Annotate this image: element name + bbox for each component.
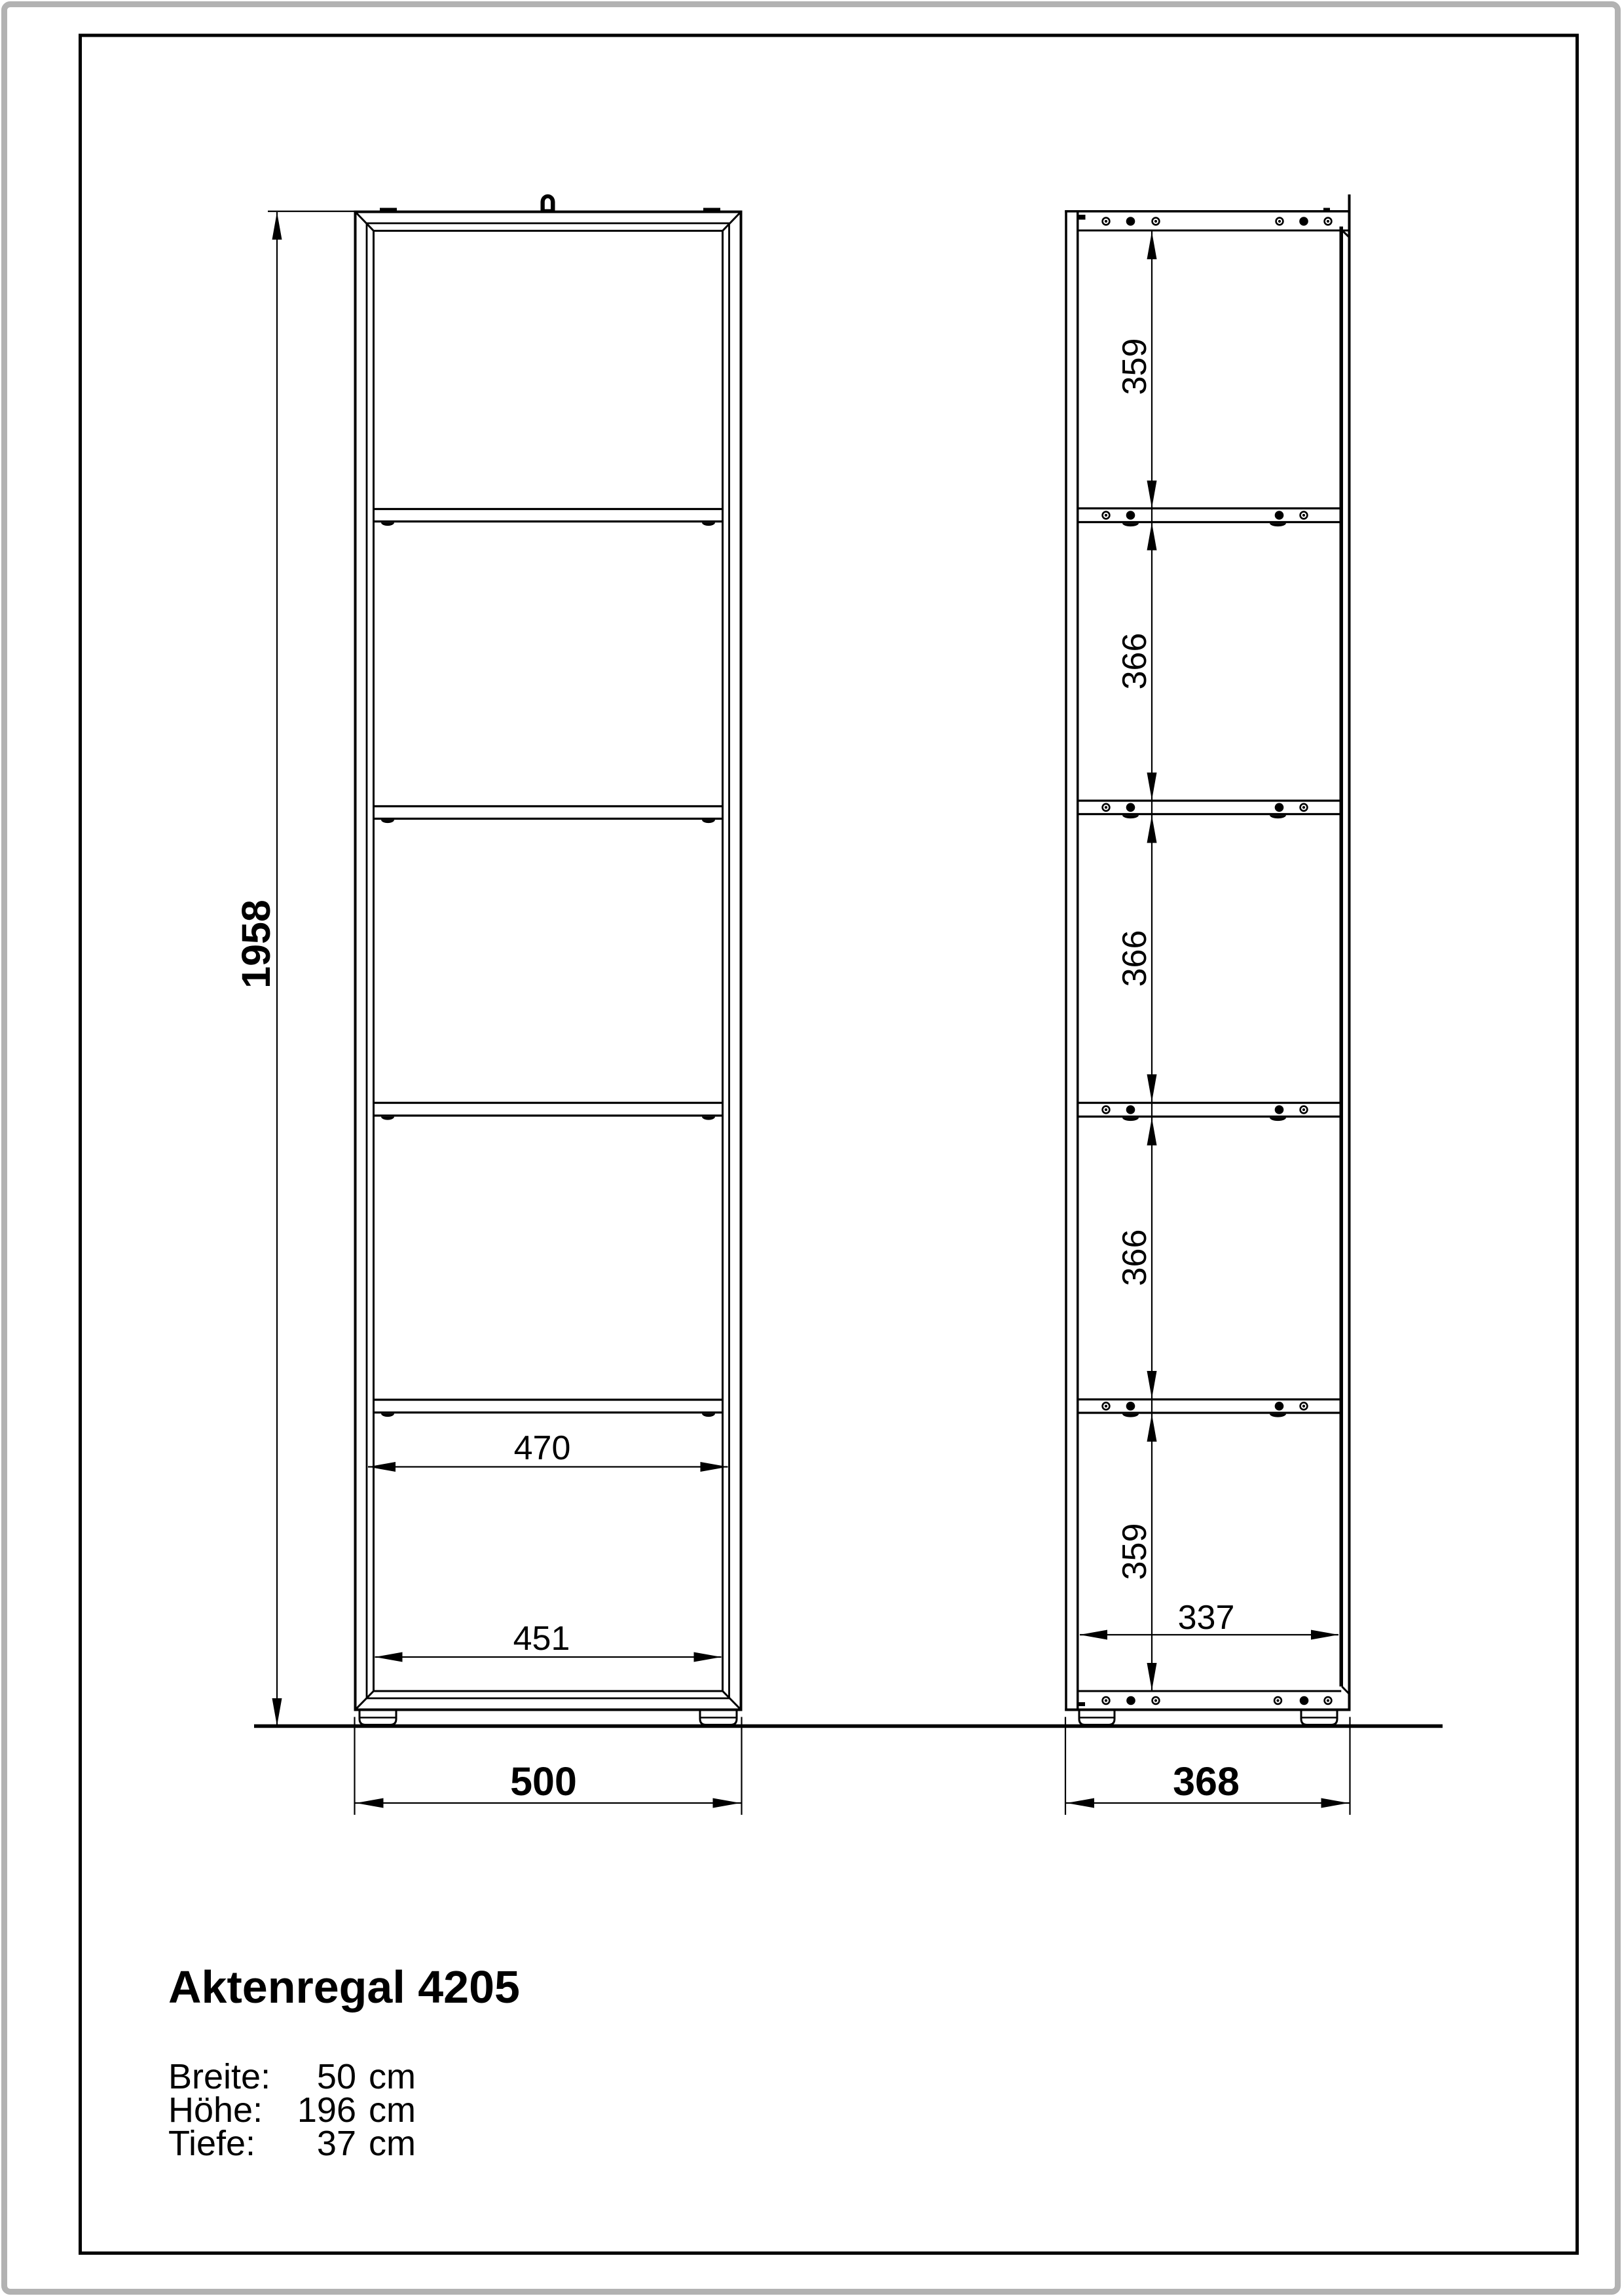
svg-text:500: 500: [510, 1759, 577, 1804]
svg-text:470: 470: [514, 1429, 571, 1467]
svg-text:366: 366: [1116, 633, 1154, 690]
svg-text:1958: 1958: [234, 900, 278, 989]
svg-text:359: 359: [1116, 1523, 1154, 1580]
svg-text:451: 451: [513, 1620, 570, 1658]
svg-text:359: 359: [1116, 338, 1154, 395]
svg-text:366: 366: [1116, 930, 1154, 987]
svg-text:Tiefe:: Tiefe:: [168, 2124, 255, 2163]
svg-text:cm: cm: [369, 2124, 416, 2163]
svg-text:366: 366: [1116, 1230, 1154, 1286]
svg-text:337: 337: [1178, 1599, 1235, 1637]
svg-text:37: 37: [317, 2124, 356, 2163]
svg-text:Aktenregal 4205: Aktenregal 4205: [168, 1961, 520, 2013]
svg-text:368: 368: [1173, 1759, 1240, 1804]
